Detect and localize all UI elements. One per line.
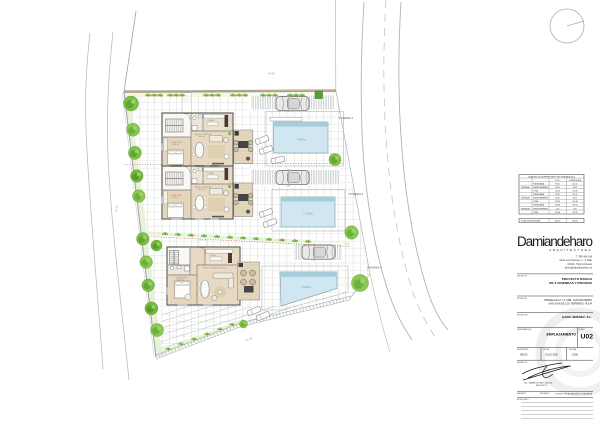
svg-text:SALON - COMEDOR 28.60 m2: SALON - COMEDOR 28.60 m2 [203, 267, 227, 270]
svg-text:TOTAL: TOTAL [533, 190, 538, 193]
svg-text:13.20 m2: 13.20 m2 [177, 280, 184, 282]
svg-text:EXPEDIENTE: EXPEDIENTE [517, 349, 529, 351]
svg-text:FECHA: FECHA [543, 348, 550, 351]
svg-text:PLANTA BAJA: PLANTA BAJA [533, 182, 545, 185]
svg-text:JULIO 2020: JULIO 2020 [545, 354, 558, 357]
svg-text:TOTAL EDIFICACIONES: TOTAL EDIFICACIONES [521, 220, 542, 223]
svg-text:400.05: 400.05 [572, 221, 578, 223]
svg-text:U02: U02 [581, 334, 594, 341]
svg-text:≈ 7,50 m: ≈ 7,50 m [303, 212, 314, 216]
svg-text:≈ 8,00 m: ≈ 8,00 m [301, 285, 312, 289]
svg-text:COCINA: COCINA [207, 119, 214, 122]
svg-text:VIVIENDA 2: VIVIENDA 2 [521, 197, 530, 200]
svg-text:EMPLAZAMIENTO: EMPLAZAMIENTO [546, 333, 576, 337]
svg-text:12.40 m2: 12.40 m2 [172, 144, 179, 146]
svg-text:Avda. Los Antonios, 2 - 4, Baj: Avda. Los Antonios, 2 - 4, Bajo [559, 259, 592, 262]
svg-text:124.50: 124.50 [555, 191, 560, 193]
svg-text:VIVIENDA 3: VIVIENDA 3 [521, 207, 530, 210]
svg-text:ARQUITECTURA: ARQUITECTURA [549, 248, 592, 252]
svg-text:350.40: 350.40 [555, 221, 561, 223]
svg-text:ARQUITECTO: ARQUITECTO [536, 384, 548, 387]
svg-text:T. 950 464 148: T. 950 464 148 [576, 256, 592, 259]
svg-text:0.00: 0.00 [573, 208, 576, 210]
svg-text:DENOMINACION: DENOMINACION [517, 328, 532, 331]
svg-text:PLANTA BAJA: PLANTA BAJA [533, 204, 545, 207]
svg-text:04640 - Pulpi (Almeria): 04640 - Pulpi (Almeria) [568, 263, 593, 266]
svg-text:26.30: 26.30 [555, 187, 559, 189]
svg-text:PLANTA PRIMERA: PLANTA PRIMERA [533, 197, 548, 200]
svg-text:24.10 m2: 24.10 m2 [198, 136, 205, 138]
svg-text:119.50: 119.50 [572, 205, 577, 207]
svg-text:12.40 m2: 12.40 m2 [172, 197, 179, 199]
svg-text:30.25: 30.25 [573, 198, 577, 200]
svg-text:PROMOTOR: PROMOTOR [517, 314, 528, 316]
svg-text:ESCALA: ESCALA [569, 348, 577, 351]
svg-text:26.30: 26.30 [555, 198, 559, 200]
svg-text:101.40: 101.40 [555, 212, 560, 214]
svg-text:MODIFICADO: MODIFICADO [517, 398, 529, 401]
svg-text:124.50: 124.50 [555, 201, 560, 203]
svg-text:98.20: 98.20 [555, 183, 559, 185]
svg-text:1/250: 1/250 [572, 354, 579, 357]
svg-text:Damiandeharo: Damiandeharo [517, 234, 593, 249]
svg-text:PLANTA BAJA: PLANTA BAJA [533, 193, 545, 196]
svg-text:0.00: 0.00 [556, 208, 559, 210]
svg-text:PROYECTO: PROYECTO [517, 276, 528, 278]
svg-text:119.50: 119.50 [572, 212, 577, 214]
svg-text:98.20: 98.20 [555, 194, 559, 196]
svg-text:110.15: 110.15 [572, 183, 577, 185]
svg-text:UTIL: UTIL [556, 180, 560, 182]
svg-text:COCINA: COCINA [209, 254, 216, 257]
svg-text:30.25: 30.25 [573, 187, 577, 189]
svg-text:TOTAL: TOTAL [533, 211, 538, 214]
svg-text:admin@damiandeharo.es: admin@damiandeharo.es [565, 267, 593, 270]
svg-text:DE 3 VIVIENDAS Y PISCINAS: DE 3 VIVIENDAS Y PISCINAS [549, 281, 592, 285]
svg-text:090/20: 090/20 [520, 354, 528, 357]
svg-text:SAN JUAN DE LOS TERREROS, PULP: SAN JUAN DE LOS TERREROS, PULPI [549, 303, 593, 306]
svg-text:VIVIENDA 1: VIVIENDA 1 [339, 116, 354, 120]
svg-text:CONSTRUIDA: CONSTRUIDA [569, 179, 582, 182]
svg-text:REVISADO: REVISADO [540, 392, 550, 395]
svg-text:45.90: 45.90 [268, 72, 275, 76]
svg-text:24.10 m2: 24.10 m2 [198, 189, 205, 191]
svg-text:PLANO: PLANO [579, 328, 586, 331]
svg-text:COLEGIO OFICIAL ARQUITECTOS AL: COLEGIO OFICIAL ARQUITECTOS ALMERIA [555, 393, 593, 396]
svg-text:CUADRO DE SUPERFICIES POR VIVI: CUADRO DE SUPERFICIES POR VIVIENDA (m2) [528, 175, 575, 178]
svg-text:VIVIENDA 1: VIVIENDA 1 [521, 186, 530, 189]
svg-text:HARO JIMENEZ, S.L.: HARO JIMENEZ, S.L. [562, 315, 592, 319]
svg-text:101.40: 101.40 [555, 205, 560, 207]
svg-text:REDACTOR: REDACTOR [517, 361, 528, 364]
svg-text:DIBUJADO: DIBUJADO [517, 392, 527, 395]
svg-text:110.15: 110.15 [572, 194, 577, 196]
svg-text:COCINA: COCINA [207, 172, 214, 175]
svg-text:PLANTA PRIMERA: PLANTA PRIMERA [533, 207, 548, 210]
svg-text:140.40: 140.40 [572, 201, 577, 203]
svg-text:VIVIENDA 3: VIVIENDA 3 [367, 265, 382, 269]
svg-text:140.40: 140.40 [572, 191, 577, 193]
svg-text:SITUACION: SITUACION [517, 297, 527, 300]
svg-text:TOTAL: TOTAL [533, 200, 538, 203]
svg-text:≈ 7,50 m: ≈ 7,50 m [295, 138, 306, 142]
svg-text:VIVIENDA 2: VIVIENDA 2 [349, 192, 364, 196]
svg-text:PLANTA PRIMERA: PLANTA PRIMERA [533, 186, 548, 189]
